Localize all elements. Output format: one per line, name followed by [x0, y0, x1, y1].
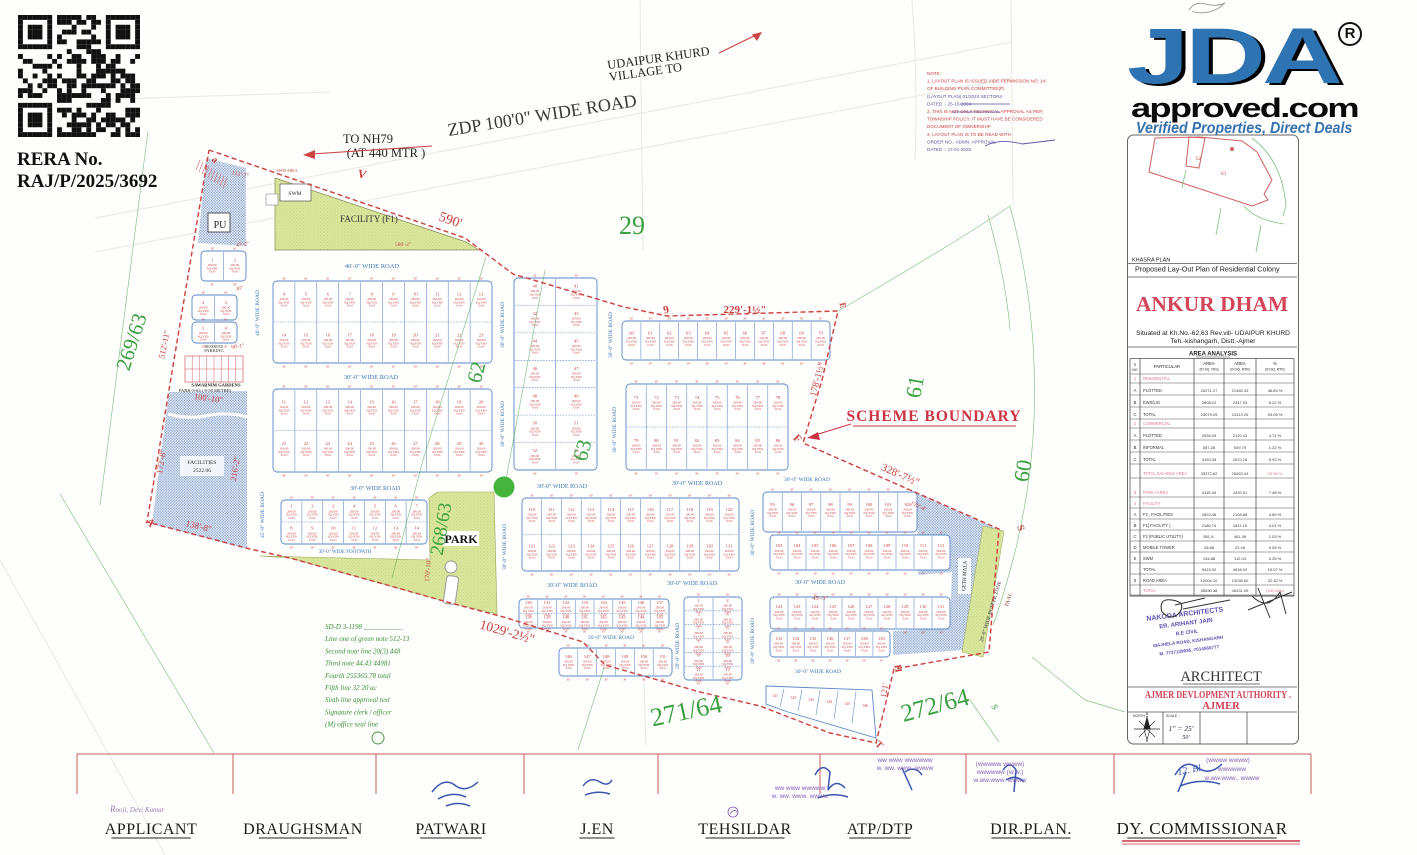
svg-text:47: 47	[574, 366, 579, 371]
svg-text:30x60: 30x60	[371, 517, 379, 520]
svg-text:SWM AREA: SWM AREA	[276, 168, 297, 173]
svg-text:30': 30'	[867, 488, 871, 492]
svg-text:30': 30'	[781, 317, 785, 321]
svg-text:30': 30'	[668, 572, 672, 576]
svg-text:126: 126	[627, 543, 635, 548]
svg-text:30': 30'	[829, 488, 833, 492]
svg-text:A: A	[1134, 433, 1137, 438]
svg-text:30x60: 30x60	[902, 617, 910, 620]
svg-text:30': 30'	[800, 361, 804, 365]
svg-text:30x60: 30x60	[531, 407, 539, 410]
svg-text:30': 30'	[831, 571, 835, 575]
svg-text:30x60: 30x60	[647, 520, 655, 523]
svg-text:30'-0" WIDE ROAD: 30'-0" WIDE ROAD	[500, 401, 506, 447]
svg-text:30x60: 30x60	[346, 454, 354, 457]
svg-text:AREA: AREA	[1234, 361, 1246, 366]
svg-text:30x60: 30x60	[827, 515, 835, 518]
svg-text:30x60: 30x60	[568, 557, 576, 560]
svg-text:15: 15	[304, 332, 309, 337]
svg-text:30x60: 30x60	[302, 346, 310, 349]
svg-text:5: 5	[1134, 578, 1137, 583]
svg-text:30x60: 30x60	[573, 407, 581, 410]
svg-text:30x60: 30x60	[848, 617, 856, 620]
svg-text:69: 69	[799, 331, 804, 336]
svg-text:84: 84	[735, 438, 740, 443]
svg-text:146: 146	[565, 654, 573, 659]
svg-text:68: 68	[780, 331, 785, 336]
svg-text:30': 30'	[550, 494, 554, 498]
svg-text:30': 30'	[776, 471, 780, 475]
svg-text:30x60: 30x60	[817, 344, 825, 347]
svg-text:106: 106	[830, 543, 838, 548]
svg-text:30': 30'	[457, 473, 461, 477]
svg-text:30': 30'	[845, 627, 849, 631]
svg-text:Proposed Lay-Out Plan of Res: Proposed Lay-Out Plan of Residential Col…	[1135, 265, 1280, 274]
svg-text:30x60: 30x60	[760, 344, 768, 347]
svg-text:4.71 %: 4.71 %	[1269, 433, 1282, 438]
svg-text:30': 30'	[629, 494, 633, 498]
svg-text:30': 30'	[415, 545, 419, 549]
svg-text:30x60: 30x60	[693, 408, 701, 411]
svg-text:30': 30'	[777, 627, 781, 631]
svg-text:26063.44: 26063.44	[1232, 471, 1249, 476]
svg-text:30': 30'	[939, 593, 943, 597]
svg-text:Situated at Kh.No.-62,63 Rev.v: Situated at Kh.No.-62,63 Rev.vill- UDAIP…	[1136, 330, 1290, 337]
svg-text:30': 30'	[352, 545, 356, 549]
svg-text:30': 30'	[867, 571, 871, 575]
svg-text:126: 126	[848, 604, 856, 609]
svg-text:19: 19	[457, 400, 462, 405]
svg-text:122: 122	[776, 604, 784, 609]
svg-text:30': 30'	[569, 572, 573, 576]
svg-text:30x60: 30x60	[734, 408, 742, 411]
svg-text:78: 78	[776, 395, 781, 400]
svg-text:FACILITIES: FACILITIES	[188, 460, 217, 466]
svg-text:30x60: 30x60	[794, 617, 802, 620]
svg-text:30': 30'	[604, 644, 608, 648]
svg-text:2. THIS IS NOT ONLY TECHNICAL: 2. THIS IS NOT ONLY TECHNICAL APPROVAL A…	[927, 109, 1043, 114]
svg-text:30': 30'	[648, 572, 652, 576]
svg-text:14: 14	[282, 332, 287, 337]
svg-text:134.88: 134.88	[1203, 556, 1216, 561]
svg-text:5415.92: 5415.92	[1202, 567, 1217, 572]
svg-text:PLOTTED: PLOTTED	[1143, 388, 1162, 393]
svg-text:30x60: 30x60	[200, 313, 208, 316]
svg-text:112: 112	[568, 507, 575, 512]
svg-text:TOWNSHIP POLICY. IT MUST HAVE: TOWNSHIP POLICY. IT MUST HAVE BE CONSIDE…	[927, 117, 1043, 122]
svg-text:30x60: 30x60	[324, 454, 332, 457]
svg-text:30x60: 30x60	[633, 408, 641, 411]
svg-text:23: 23	[479, 332, 484, 337]
svg-text:62: 62	[667, 331, 672, 336]
svg-text:30x60: 30x60	[809, 649, 817, 652]
svg-text:99: 99	[847, 502, 852, 507]
svg-text:30': 30'	[370, 385, 374, 389]
svg-text:30': 30'	[602, 595, 606, 599]
svg-text:121: 121	[528, 543, 536, 548]
svg-text:30': 30'	[771, 488, 775, 492]
svg-text:30': 30'	[726, 681, 730, 685]
svg-text:30x60: 30x60	[775, 649, 783, 652]
svg-text:30x60: 30x60	[548, 520, 556, 523]
svg-text:27: 27	[413, 441, 418, 446]
svg-text:40'-0" WIDE ROAD: 40'-0" WIDE ROAD	[255, 290, 261, 336]
svg-text:127: 127	[647, 543, 655, 548]
svg-text:30x60: 30x60	[324, 346, 332, 349]
svg-text:143: 143	[619, 615, 627, 620]
svg-text:30x60: 30x60	[324, 305, 332, 308]
svg-text:SD-D 3-1198 ___________: SD-D 3-1198 ___________	[325, 623, 403, 631]
svg-text:30x60: 30x60	[885, 515, 893, 518]
svg-text:30': 30'	[564, 629, 568, 633]
svg-text:SAWARNIM GARDENS: SAWARNIM GARDENS	[191, 383, 241, 388]
svg-text:30': 30'	[828, 658, 832, 662]
svg-text:40'-0" WIDE ROAD: 40'-0" WIDE ROAD	[345, 263, 400, 270]
svg-text:30x60: 30x60	[704, 344, 712, 347]
svg-text:30x60: 30x60	[647, 344, 655, 347]
svg-text:85: 85	[755, 438, 760, 443]
svg-text:AREA: AREA	[1203, 361, 1215, 366]
svg-text:30': 30'	[831, 531, 835, 535]
svg-text:132: 132	[562, 600, 570, 605]
svg-text:wwwwww (w.w.): wwwwww (w.w.)	[976, 769, 1024, 776]
svg-text:30': 30'	[620, 595, 624, 599]
svg-text:30'-0" WIDE ROAD: 30'-0" WIDE ROAD	[795, 580, 846, 586]
svg-text:129: 129	[686, 543, 694, 548]
svg-text:(100.00%): (100.00%)	[1266, 588, 1285, 593]
svg-text:30': 30'	[348, 473, 352, 477]
svg-text:30': 30'	[795, 593, 799, 597]
svg-text:580'-2": 580'-2"	[395, 242, 411, 248]
svg-text:145: 145	[656, 615, 664, 620]
svg-text:AJMER DEVLOPMENT AUTHORITY .: AJMER DEVLOPMENT AUTHORITY .	[1145, 690, 1291, 701]
svg-text:30x60: 30x60	[346, 305, 354, 308]
svg-text:30x60: 30x60	[346, 346, 354, 349]
svg-text:87': 87'	[236, 286, 243, 293]
svg-text:30x60: 30x60	[607, 557, 615, 560]
svg-text:30': 30'	[414, 473, 418, 477]
svg-text:30': 30'	[634, 471, 638, 475]
svg-text:30x60: 30x60	[280, 346, 288, 349]
svg-text:134: 134	[600, 600, 608, 605]
svg-text:73: 73	[674, 395, 679, 400]
svg-text:MOBILE TOWER: MOBILE TOWER	[1143, 545, 1175, 550]
svg-text:11: 11	[282, 400, 287, 405]
svg-text:30': 30'	[848, 488, 852, 492]
svg-text:30': 30'	[667, 361, 671, 365]
svg-text:30x60: 30x60	[456, 454, 464, 457]
svg-text:30': 30'	[845, 658, 849, 662]
svg-text:30x60: 30x60	[346, 413, 354, 416]
svg-text:30': 30'	[648, 494, 652, 498]
svg-text:129: 129	[902, 604, 910, 609]
svg-text:18: 18	[435, 400, 440, 405]
svg-text:30': 30'	[326, 473, 330, 477]
svg-text:104: 104	[794, 543, 802, 548]
svg-text:61: 61	[648, 331, 653, 336]
svg-text:130: 130	[525, 600, 533, 605]
svg-text:2535.03: 2535.03	[1202, 433, 1217, 438]
svg-text:1811.16: 1811.16	[1233, 523, 1248, 528]
svg-text:139: 139	[544, 615, 552, 620]
svg-text:30x60: 30x60	[846, 515, 854, 518]
svg-text:30': 30'	[457, 364, 461, 368]
svg-text:30': 30'	[811, 658, 815, 662]
svg-text:133: 133	[581, 600, 589, 605]
svg-text:16: 16	[326, 332, 331, 337]
svg-text:30'-0" WIDE ROAD: 30'-0" WIDE ROAD	[350, 486, 401, 492]
svg-text:30x60: 30x60	[531, 434, 539, 437]
svg-text:N: N	[1146, 712, 1149, 716]
svg-text:PLOTTED: PLOTTED	[1143, 433, 1162, 438]
svg-text:66: 66	[743, 331, 748, 336]
svg-text:0.05 %: 0.05 %	[1269, 545, 1282, 550]
svg-text:30x60: 30x60	[666, 344, 674, 347]
svg-text:142: 142	[600, 615, 608, 620]
svg-text:30': 30'	[370, 277, 374, 281]
svg-text:20: 20	[413, 332, 418, 337]
svg-text:11: 11	[435, 291, 440, 296]
svg-text:30': 30'	[533, 471, 537, 475]
svg-text:30': 30'	[727, 572, 731, 576]
svg-text:82: 82	[695, 438, 700, 443]
svg-text:30x60: 30x60	[280, 413, 288, 416]
svg-text:98: 98	[828, 502, 833, 507]
svg-text:30'-0" WIDE ROAD: 30'-0" WIDE ROAD	[537, 484, 588, 490]
svg-text:70: 70	[818, 331, 823, 336]
svg-text:30': 30'	[415, 496, 419, 500]
svg-text:30x60: 30x60	[920, 617, 928, 620]
svg-text:30x60: 30x60	[884, 617, 892, 620]
svg-text:7.48 %: 7.48 %	[1269, 490, 1282, 495]
svg-text:30': 30'	[604, 677, 608, 681]
svg-text:148: 148	[603, 654, 611, 659]
svg-text:14: 14	[347, 400, 352, 405]
svg-text:112.04: 112.04	[1234, 556, 1247, 561]
svg-text:80: 80	[654, 438, 659, 443]
svg-text:30': 30'	[310, 496, 314, 500]
svg-text:115: 115	[627, 507, 634, 512]
svg-text:30': 30'	[639, 595, 643, 599]
svg-text:30x60: 30x60	[573, 434, 581, 437]
svg-text:30x60: 30x60	[478, 454, 486, 457]
svg-text:83: 83	[715, 438, 720, 443]
svg-text:Teh.-kishangarh, Distt.-Ajmer: Teh.-kishangarh, Distt.-Ajmer	[1170, 338, 1256, 345]
svg-text:(wwwww wwww): (wwwww wwww)	[976, 761, 1024, 768]
svg-text:(AT 440 MTR ): (AT 440 MTR )	[347, 146, 426, 160]
svg-text:30x60: 30x60	[434, 305, 442, 308]
svg-text:30x60: 30x60	[726, 557, 734, 560]
svg-text:2180.74: 2180.74	[1202, 523, 1217, 528]
svg-text:14: 14	[414, 526, 419, 531]
svg-text:30x60: 30x60	[478, 413, 486, 416]
svg-text:138: 138	[861, 636, 869, 641]
svg-text:30x60: 30x60	[774, 451, 782, 454]
svg-text:30': 30'	[867, 531, 871, 535]
svg-text:139: 139	[878, 636, 886, 641]
svg-text:30x60: 30x60	[848, 557, 856, 560]
svg-text:30x60: 30x60	[884, 557, 892, 560]
svg-text:30x60: 30x60	[280, 305, 288, 308]
svg-text:30x60: 30x60	[776, 617, 784, 620]
svg-text:30': 30'	[655, 471, 659, 475]
svg-text:30x60: 30x60	[434, 346, 442, 349]
svg-text:SWM: SWM	[1143, 556, 1154, 561]
svg-text:141: 141	[581, 615, 589, 620]
svg-text:10.07 %: 10.07 %	[1268, 567, 1283, 572]
svg-text:30'-0" WIDE ROAD: 30'-0" WIDE ROAD	[500, 302, 506, 348]
svg-text:30': 30'	[530, 494, 534, 498]
svg-text:30': 30'	[348, 364, 352, 368]
svg-text:30': 30'	[304, 385, 308, 389]
svg-text:DRAUGHSMAN: DRAUGHSMAN	[243, 821, 363, 838]
svg-text:30x60: 30x60	[628, 344, 636, 347]
svg-text:30x60: 30x60	[667, 557, 675, 560]
svg-text:30x60: 30x60	[456, 413, 464, 416]
svg-text:30': 30'	[762, 361, 766, 365]
svg-text:30x60: 30x60	[866, 557, 874, 560]
svg-text:46.83 %: 46.83 %	[1268, 388, 1283, 393]
svg-text:30': 30'	[743, 361, 747, 365]
svg-text:74: 74	[695, 395, 700, 400]
svg-text:30x60: 30x60	[667, 520, 675, 523]
svg-text:30'-0" WIDE ROAD: 30'-0" WIDE ROAD	[750, 510, 756, 556]
svg-text:30x60: 30x60	[640, 667, 648, 670]
svg-text:229'-1½": 229'-1½"	[723, 304, 766, 316]
svg-text:30'-0" WIDE ROAD: 30'-0" WIDE ROAD	[784, 477, 830, 483]
svg-text:96: 96	[790, 502, 795, 507]
svg-text:30'-0" WIDE ROAD: 30'-0" WIDE ROAD	[502, 524, 508, 570]
svg-text:%: %	[1273, 361, 1277, 366]
svg-text:ORDER NO.- ADMN. APPROVAL: ORDER NO.- ADMN. APPROVAL	[927, 139, 996, 144]
svg-text:30': 30'	[326, 385, 330, 389]
svg-text:30x60: 30x60	[392, 539, 400, 542]
svg-text:30x60: 30x60	[798, 344, 806, 347]
svg-text:2522.46: 2522.46	[1202, 512, 1217, 517]
svg-text:30': 30'	[394, 545, 398, 549]
svg-text:134: 134	[792, 636, 800, 641]
svg-text:TOTAL: TOTAL	[1143, 567, 1157, 572]
svg-text:30': 30'	[715, 380, 719, 384]
svg-text:30'-0" WIDE ROAD: 30'-0" WIDE ROAD	[795, 669, 841, 675]
svg-text:43: 43	[574, 311, 579, 316]
svg-text:30x60: 30x60	[412, 346, 420, 349]
svg-text:30': 30'	[688, 572, 692, 576]
svg-text:30x60: 30x60	[938, 557, 946, 560]
svg-text:30': 30'	[348, 385, 352, 389]
svg-text:30'-0" WIDE ROAD: 30'-0" WIDE ROAD	[672, 481, 723, 487]
svg-text:30': 30'	[201, 291, 205, 295]
svg-text:30x60: 30x60	[808, 515, 816, 518]
svg-text:108: 108	[866, 543, 874, 548]
svg-text:118: 118	[686, 507, 693, 512]
svg-text:30': 30'	[569, 494, 573, 498]
svg-text:71: 71	[634, 395, 639, 400]
svg-text:FACILITY (F1): FACILITY (F1)	[340, 214, 398, 224]
svg-text:wwwwww: wwwwww	[1217, 766, 1246, 773]
svg-text:30': 30'	[589, 494, 593, 498]
svg-text:30': 30'	[686, 317, 690, 321]
svg-text:TOTAL: TOTAL	[1143, 412, 1157, 417]
svg-text:C: C	[1133, 457, 1136, 462]
svg-text:122: 122	[548, 543, 556, 548]
svg-text:30x60: 30x60	[686, 557, 694, 560]
svg-text:30': 30'	[331, 545, 335, 549]
svg-text:25: 25	[369, 441, 374, 446]
svg-text:B: B	[1134, 400, 1137, 405]
svg-text:ROAD AREA: ROAD AREA	[1143, 578, 1167, 583]
svg-text:45'-3": 45'-3"	[812, 595, 828, 602]
svg-text:30x60: 30x60	[368, 346, 376, 349]
svg-text:30x60: 30x60	[330, 517, 338, 520]
svg-text:30: 30	[479, 441, 484, 446]
svg-text:2120.43: 2120.43	[1233, 433, 1248, 438]
svg-text:137: 137	[844, 636, 852, 641]
svg-text:2670.18: 2670.18	[1233, 457, 1248, 462]
svg-text:30': 30'	[811, 627, 815, 631]
svg-text:30x60: 30x60	[653, 451, 661, 454]
svg-text:30': 30'	[849, 531, 853, 535]
svg-text:30x60: 30x60	[706, 520, 714, 523]
svg-text:DOCUMENT OF OWNERSHIP.: DOCUMENT OF OWNERSHIP.	[927, 124, 991, 129]
svg-text:F2 (PUBLIC UTILITY): F2 (PUBLIC UTILITY)	[1143, 534, 1183, 539]
svg-text:30': 30'	[809, 488, 813, 492]
svg-text:30x60: 30x60	[754, 408, 762, 411]
svg-text:30': 30'	[686, 361, 690, 365]
svg-text:30': 30'	[629, 572, 633, 576]
svg-text:65: 65	[724, 331, 729, 336]
svg-text:Second note line 20(3) 448: Second note line 20(3) 448	[325, 647, 401, 655]
svg-text:30': 30'	[304, 473, 308, 477]
svg-text:4.01 %: 4.01 %	[1269, 523, 1282, 528]
svg-text:30': 30'	[649, 317, 653, 321]
svg-text:ww www wwwww: ww www wwwww	[774, 785, 826, 792]
svg-text:143: 143	[808, 698, 814, 702]
svg-text:30x60: 30x60	[723, 344, 731, 347]
svg-text:30': 30'	[310, 545, 314, 549]
svg-text:62: 62	[1196, 157, 1202, 162]
svg-text:30': 30'	[688, 494, 692, 498]
svg-text:30x60: 30x60	[573, 461, 581, 464]
svg-text:30x60: 30x60	[827, 649, 835, 652]
svg-text:30x60: 30x60	[573, 379, 581, 382]
svg-text:30': 30'	[585, 677, 589, 681]
svg-text:COMMERCIAL: COMMERCIAL	[1143, 421, 1171, 426]
svg-text:30x60: 30x60	[302, 454, 310, 457]
svg-text:30': 30'	[282, 473, 286, 477]
svg-text:30': 30'	[668, 494, 672, 498]
svg-text:1.22 %: 1.22 %	[1269, 445, 1282, 450]
svg-text:RESERVED: RESERVED	[205, 345, 224, 349]
svg-text:DATED :- 17-01-2025: DATED :- 17-01-2025	[927, 147, 972, 152]
svg-text:w. ww. www. wwww: w. ww. www. wwww	[876, 765, 934, 772]
svg-text:30x60: 30x60	[531, 297, 539, 300]
svg-text:120: 120	[726, 507, 734, 512]
svg-text:10: 10	[413, 291, 418, 296]
svg-text:30': 30'	[630, 317, 634, 321]
svg-text:30': 30'	[903, 571, 907, 575]
svg-text:30': 30'	[564, 595, 568, 599]
svg-text:30': 30'	[414, 385, 418, 389]
svg-text:30x60: 30x60	[693, 451, 701, 454]
svg-text:81: 81	[674, 438, 679, 443]
svg-text:30': 30'	[290, 545, 294, 549]
svg-text:30': 30'	[921, 531, 925, 535]
svg-text:110: 110	[529, 507, 536, 512]
svg-text:C: C	[1133, 534, 1136, 539]
svg-text:21: 21	[435, 332, 440, 337]
svg-text:11: 11	[352, 526, 357, 531]
